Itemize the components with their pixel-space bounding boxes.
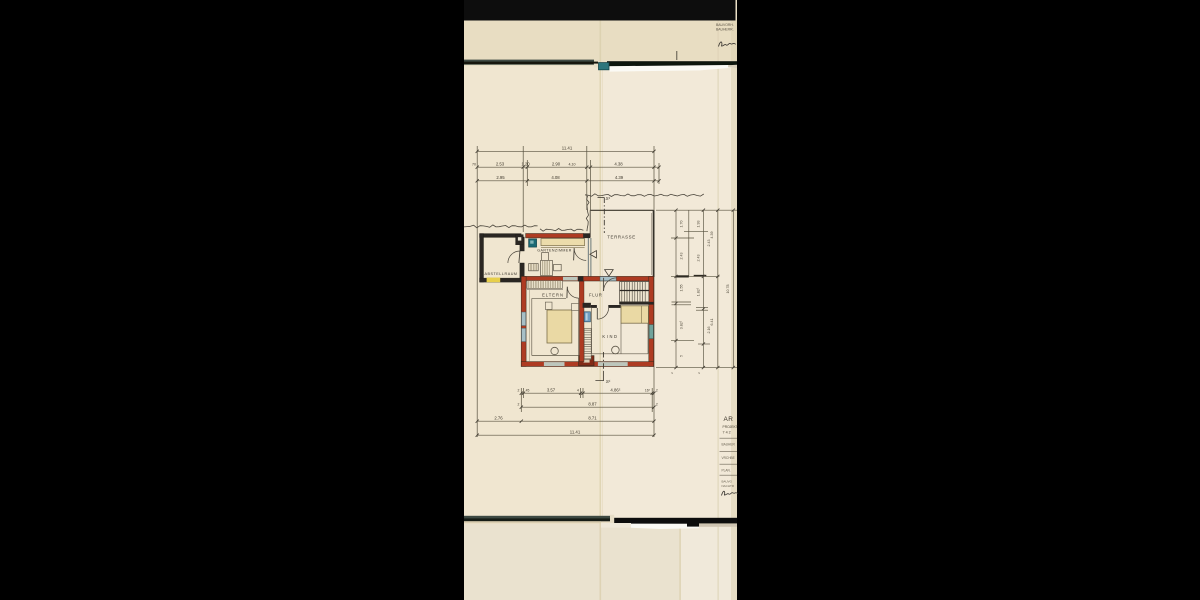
- svg-text:2.76: 2.76: [494, 416, 503, 421]
- svg-text:3.82⁵: 3.82⁵: [679, 320, 683, 329]
- svg-text:2.43: 2.43: [679, 253, 683, 260]
- svg-text:BAUVG: BAUVG: [722, 479, 733, 483]
- svg-text:2.16: 2.16: [707, 327, 711, 334]
- svg-text:7 4 2: 7 4 2: [723, 430, 731, 434]
- svg-text:KIND: KIND: [602, 334, 618, 339]
- svg-text:PROJEKT: PROJEKT: [723, 425, 738, 429]
- svg-text:VRCHBE: VRCHBE: [722, 456, 735, 460]
- svg-text:FLUR: FLUR: [589, 292, 603, 297]
- svg-text:1.55: 1.55: [679, 285, 683, 292]
- svg-text:ELTERN: ELTERN: [542, 292, 564, 297]
- svg-text:BAUHER: BAUHER: [722, 443, 736, 447]
- svg-text:S¹: S¹: [606, 379, 611, 384]
- svg-text:TERRASSE: TERRASSE: [607, 235, 635, 240]
- svg-text:PLAN.: PLAN.: [722, 469, 731, 473]
- svg-text:GARTENZIMMER: GARTENZIMMER: [537, 248, 571, 252]
- svg-text:2: 2: [656, 389, 658, 393]
- svg-text:BAUHERR.: BAUHERR.: [716, 28, 734, 32]
- svg-text:4.38: 4.38: [614, 161, 623, 166]
- svg-text:16⁵: 16⁵: [645, 389, 651, 393]
- svg-text:3.57: 3.57: [547, 388, 556, 393]
- svg-text:2.90: 2.90: [552, 161, 561, 166]
- svg-text:1.82⁵: 1.82⁵: [697, 287, 701, 296]
- svg-text:11.41: 11.41: [562, 146, 573, 151]
- svg-text:2.95: 2.95: [496, 175, 505, 180]
- svg-text:4: 4: [577, 389, 579, 393]
- svg-text:4.39: 4.39: [710, 232, 714, 239]
- svg-text:4.08: 4.08: [551, 175, 560, 180]
- svg-text:11.41: 11.41: [570, 430, 581, 435]
- svg-text:2.43: 2.43: [707, 240, 711, 247]
- svg-text:1.70: 1.70: [679, 221, 683, 228]
- svg-text:4.39: 4.39: [615, 175, 624, 180]
- svg-text:1.93: 1.93: [697, 221, 701, 228]
- svg-text:ABSTELLRAUM: ABSTELLRAUM: [484, 272, 517, 276]
- svg-text:S¹: S¹: [606, 196, 611, 201]
- svg-text:8.71: 8.71: [588, 416, 597, 421]
- svg-text:BAUVORH.: BAUVORH.: [716, 23, 734, 27]
- svg-text:2: 2: [656, 403, 658, 407]
- svg-text:2.53: 2.53: [496, 161, 505, 166]
- svg-text:45: 45: [526, 389, 530, 393]
- svg-text:AR: AR: [724, 416, 734, 423]
- svg-text:2.43: 2.43: [697, 255, 701, 262]
- svg-text:2: 2: [518, 389, 520, 393]
- svg-text:5: 5: [679, 355, 683, 357]
- svg-text:1.20: 1.20: [521, 161, 530, 166]
- svg-text:6.41: 6.41: [710, 319, 714, 326]
- svg-text:8.87: 8.87: [588, 402, 597, 407]
- svg-text:NACHTR: NACHTR: [722, 484, 735, 488]
- svg-text:10.78: 10.78: [726, 285, 730, 294]
- svg-text:4.86⁵: 4.86⁵: [610, 388, 620, 393]
- svg-text:4,10: 4,10: [569, 162, 576, 166]
- svg-text:70: 70: [472, 162, 476, 166]
- svg-text:2: 2: [518, 403, 520, 407]
